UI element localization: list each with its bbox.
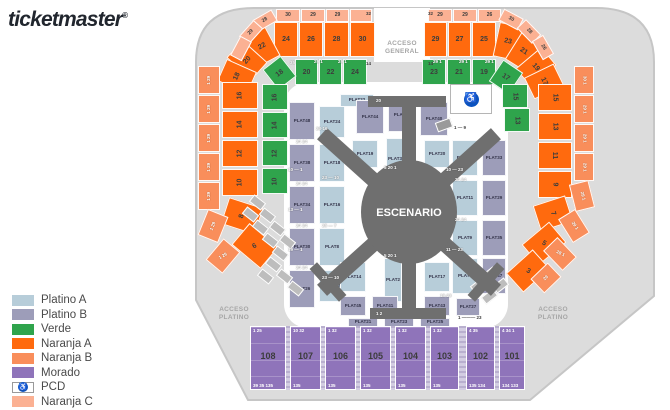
floor-section-PLAT35[interactable]: PLAT35 (482, 220, 506, 256)
stairs-aisle (391, 326, 395, 390)
row-marker: 24 24 (455, 178, 466, 183)
wheelchair-icon: ♿ (464, 92, 479, 107)
floor-section-PLAT14[interactable]: PLAT14 (340, 262, 366, 292)
acceso-general-label: ACCESO GENERAL (372, 40, 432, 56)
ring-section-12[interactable]: 12 (222, 140, 258, 167)
ring-section-11[interactable]: 11 (538, 142, 572, 169)
row-marker: 24 24 (296, 182, 307, 187)
section-row-range-bottom: 39 35 135 (253, 383, 273, 388)
section-row-range-bottom: 135 (328, 383, 336, 388)
section-row-range-top: 10 32 (293, 328, 304, 333)
ring-section-1 29[interactable]: 1 29 (198, 95, 220, 123)
stairs-aisle (495, 326, 499, 390)
row-marker: 24 24 (455, 218, 466, 223)
stairs-aisle (286, 326, 290, 390)
section-number: 107 (291, 351, 320, 361)
section-number: 106 (326, 351, 355, 361)
morado-section-104[interactable]: 1 32104135 (395, 326, 426, 390)
ticketmaster-logo: ticketmaster® (8, 8, 127, 32)
section-row-range-bottom: 135 (398, 383, 406, 388)
acceso-general-line1: ACCESO (372, 40, 432, 48)
row-marker: 24 24 (296, 266, 307, 271)
floor-section-PLAT3[interactable]: PLAT3 (386, 138, 404, 180)
section-row-range-top: 1 32 (433, 328, 442, 333)
morado-section-108[interactable]: 1 2510839 35 135 (250, 326, 286, 390)
row-marker: 25 — 7 (322, 224, 337, 229)
floor-section-PLAT11[interactable]: PLAT11 (452, 180, 478, 216)
ring-section-13[interactable]: 13 (538, 113, 572, 140)
legend-item-naranja-c: Naranja C (12, 395, 93, 409)
floor-section-PLAT48[interactable]: PLAT48 (289, 102, 315, 140)
floor-section-PLAT27[interactable]: PLAT27 (456, 298, 480, 316)
logo-registered-mark: ® (122, 11, 127, 20)
legend-label: Verde (41, 323, 71, 335)
ring-section-1 29[interactable]: 1 29 (198, 153, 220, 181)
row-marker: 23-16 (316, 127, 328, 132)
row-marker: 23 — 10 (322, 276, 339, 281)
row-marker: 29 1 (459, 60, 468, 65)
acceso-platino-left-line1: ACCESO (205, 306, 263, 314)
morado-section-106[interactable]: 1 32106135 (325, 326, 356, 390)
morado-section-102[interactable]: 4 35102135 134 (466, 326, 495, 390)
stairs-aisle (459, 326, 466, 390)
ring-section-12[interactable]: 12 (262, 140, 288, 166)
section-row-range-bottom: 135 (293, 383, 301, 388)
morado-section-105[interactable]: 1 32105135 (360, 326, 391, 390)
wheelchair-icon: ♿ (18, 382, 28, 392)
row-marker: 32 (366, 12, 371, 17)
legend-label: Naranja A (41, 338, 92, 350)
legend-swatch-platB (12, 309, 34, 320)
ring-section-14[interactable]: 14 (262, 112, 288, 138)
pcd-section[interactable]: ♿ (450, 84, 492, 114)
legend-swatch-naranjaC (12, 396, 34, 407)
legend-item-morado: Morado (12, 366, 93, 380)
section-row-range-top: 1 32 (363, 328, 372, 333)
legend-label: Naranja C (41, 396, 93, 408)
row-marker: 11 — 23 (446, 248, 463, 253)
floor-section-PLAT44[interactable]: PLAT44 (356, 100, 384, 134)
section-row-range-top: 4 35 (469, 328, 478, 333)
ring-section-26[interactable]: 26 (299, 22, 323, 57)
floor-section-PLAT43[interactable]: PLAT43 (424, 296, 450, 316)
section-row-range-top: 1 25 (253, 328, 262, 333)
floor-section-PLAT38[interactable]: PLAT38 (289, 144, 315, 182)
row-marker: 1 ——— 23 (458, 316, 482, 321)
legend-item-naranja-b: Naranja B (12, 351, 93, 365)
row-marker: 10 — 23 (446, 168, 463, 173)
ring-section-9[interactable]: 9 (538, 171, 572, 198)
legend-swatch-naranjaA (12, 338, 34, 349)
section-row-range-top: 1 32 (328, 328, 337, 333)
floor-section-PLAT24[interactable]: PLAT24 (319, 106, 345, 138)
ring-section-29 1[interactable]: 29 1 (574, 124, 594, 152)
ring-section-15[interactable]: 15 (538, 84, 572, 111)
acceso-platino-left-line2: PLATINO (205, 314, 263, 322)
section-row-range-bottom: 135 (433, 383, 441, 388)
row-marker: 10 — 1 (288, 168, 303, 173)
row-marker: 19 — 1 (288, 248, 303, 253)
section-row-range-bottom: 134 133 (502, 383, 518, 388)
ring-section-30 1[interactable]: 30 1 (574, 66, 594, 94)
floor-section-PLAT17[interactable]: PLAT17 (424, 262, 450, 292)
row-marker: 35 (290, 61, 295, 66)
section-row-range-top: 1 32 (398, 328, 407, 333)
row-marker: 1 — 9 (454, 126, 466, 131)
acceso-platino-right-label: ACCESO PLATINO (524, 306, 582, 322)
floor-section-PLAT33[interactable]: PLAT33 (482, 140, 506, 176)
section-number: 108 (251, 351, 285, 361)
ring-section-27[interactable]: 27 (448, 22, 471, 57)
row-marker: 13 — 1 (288, 208, 303, 213)
ring-section-28[interactable]: 28 (324, 22, 349, 57)
row-marker: 14 (366, 62, 371, 67)
row-marker: 1 2 (376, 312, 382, 317)
row-marker: 5 20 1 (384, 254, 397, 259)
row-marker: 24 24 (296, 140, 307, 145)
row-marker: 29 1 (338, 60, 347, 65)
floor-section-PLAT42[interactable]: PLAT42 (388, 98, 416, 132)
ring-section-16[interactable]: 16 (262, 84, 288, 110)
acceso-platino-left-label: ACCESO PLATINO (205, 306, 263, 322)
row-marker: 5 20 1 (384, 166, 397, 171)
legend-label: Morado (41, 367, 80, 379)
legend-item-platino-b: Platino B (12, 308, 93, 322)
section-row-range-bottom: 135 134 (469, 383, 485, 388)
floor-section-PLAT19[interactable]: PLAT19 (352, 140, 378, 168)
stairs-aisle (356, 326, 360, 390)
ring-section-1 29[interactable]: 1 29 (198, 66, 220, 94)
legend-swatch-pcd: ♿ (12, 382, 34, 393)
legend-label: PCD (41, 381, 65, 393)
morado-section-107[interactable]: 10 32107135 (290, 326, 321, 390)
legend-item-pcd: ♿PCD (12, 380, 93, 394)
legend-item-naranja-a: Naranja A (12, 337, 93, 351)
row-marker: 24 24 (296, 224, 307, 229)
ring-section-10[interactable]: 10 (262, 168, 288, 194)
stairs-aisle (426, 326, 430, 390)
ring-section-29 1[interactable]: 29 1 (574, 153, 594, 181)
legend-swatch-naranjaB (12, 353, 34, 364)
section-row-range-bottom: 135 (363, 383, 371, 388)
section-row-range-top: 4 34 1 (502, 328, 515, 333)
legend-label: Platino B (41, 309, 87, 321)
acceso-general-line2: GENERAL (372, 48, 432, 56)
acceso-platino-right-line2: PLATINO (524, 314, 582, 322)
morado-section-101[interactable]: 4 34 1101134 133 (499, 326, 525, 390)
row-marker: 23 — 10 (322, 176, 339, 181)
ring-section-13[interactable]: 13 (504, 108, 530, 132)
legend-label: Naranja B (41, 352, 92, 364)
row-marker: 32 (428, 12, 433, 17)
legend: Platino APlatino BVerdeNaranja ANaranja … (12, 293, 93, 409)
floor-section-PLAT29[interactable]: PLAT29 (482, 180, 506, 216)
floor-section-PLAT8[interactable]: PLAT8 (319, 228, 345, 266)
logo-text: ticketmaster (8, 8, 122, 31)
ring-section-29[interactable]: 29 (301, 9, 325, 22)
legend-label: Platino A (41, 294, 86, 306)
ring-section-29[interactable]: 29 (453, 9, 477, 22)
ring-section-15[interactable]: 15 (502, 84, 528, 108)
floor-section-PLAT34[interactable]: PLAT34 (289, 186, 315, 224)
row-marker: 29 1 (433, 60, 442, 65)
section-number: 102 (467, 351, 494, 361)
legend-swatch-verde (12, 324, 34, 335)
seatmap-page: ticketmaster® 24262830222018161412108629… (0, 0, 670, 410)
morado-section-103[interactable]: 1 32103135 (430, 326, 459, 390)
section-number: 103 (431, 351, 458, 361)
stairs-aisle (321, 326, 325, 390)
row-marker: 19-23 (440, 294, 452, 299)
legend-swatch-platA (12, 295, 34, 306)
section-number: 105 (361, 351, 390, 361)
ring-section-14[interactable]: 14 (222, 111, 258, 138)
ring-section-29[interactable]: 29 (326, 9, 349, 22)
legend-item-platino-a: Platino A (12, 293, 93, 307)
ring-section-10[interactable]: 10 (222, 169, 258, 196)
legend-item-verde: Verde (12, 322, 93, 336)
row-marker: 20 (376, 99, 381, 104)
ring-section-1 29[interactable]: 1 29 (198, 182, 220, 210)
row-marker: 29 1 (314, 60, 323, 65)
section-number: 101 (500, 351, 524, 361)
ring-section-16[interactable]: 16 (222, 82, 258, 109)
acceso-platino-right-line1: ACCESO (524, 306, 582, 314)
row-marker: 29 1 (485, 60, 494, 65)
ring-section-29 1[interactable]: 29 1 (574, 95, 594, 123)
ring-section-1 29[interactable]: 1 29 (198, 124, 220, 152)
legend-swatch-morado (12, 367, 34, 378)
section-number: 104 (396, 351, 425, 361)
floor-section-PLAT20[interactable]: PLAT20 (424, 140, 450, 168)
ring-section-30[interactable]: 30 (276, 9, 300, 22)
floor-section-PLAT16[interactable]: PLAT16 (319, 186, 345, 224)
floor-section-PLAT45[interactable]: PLAT45 (340, 296, 366, 316)
